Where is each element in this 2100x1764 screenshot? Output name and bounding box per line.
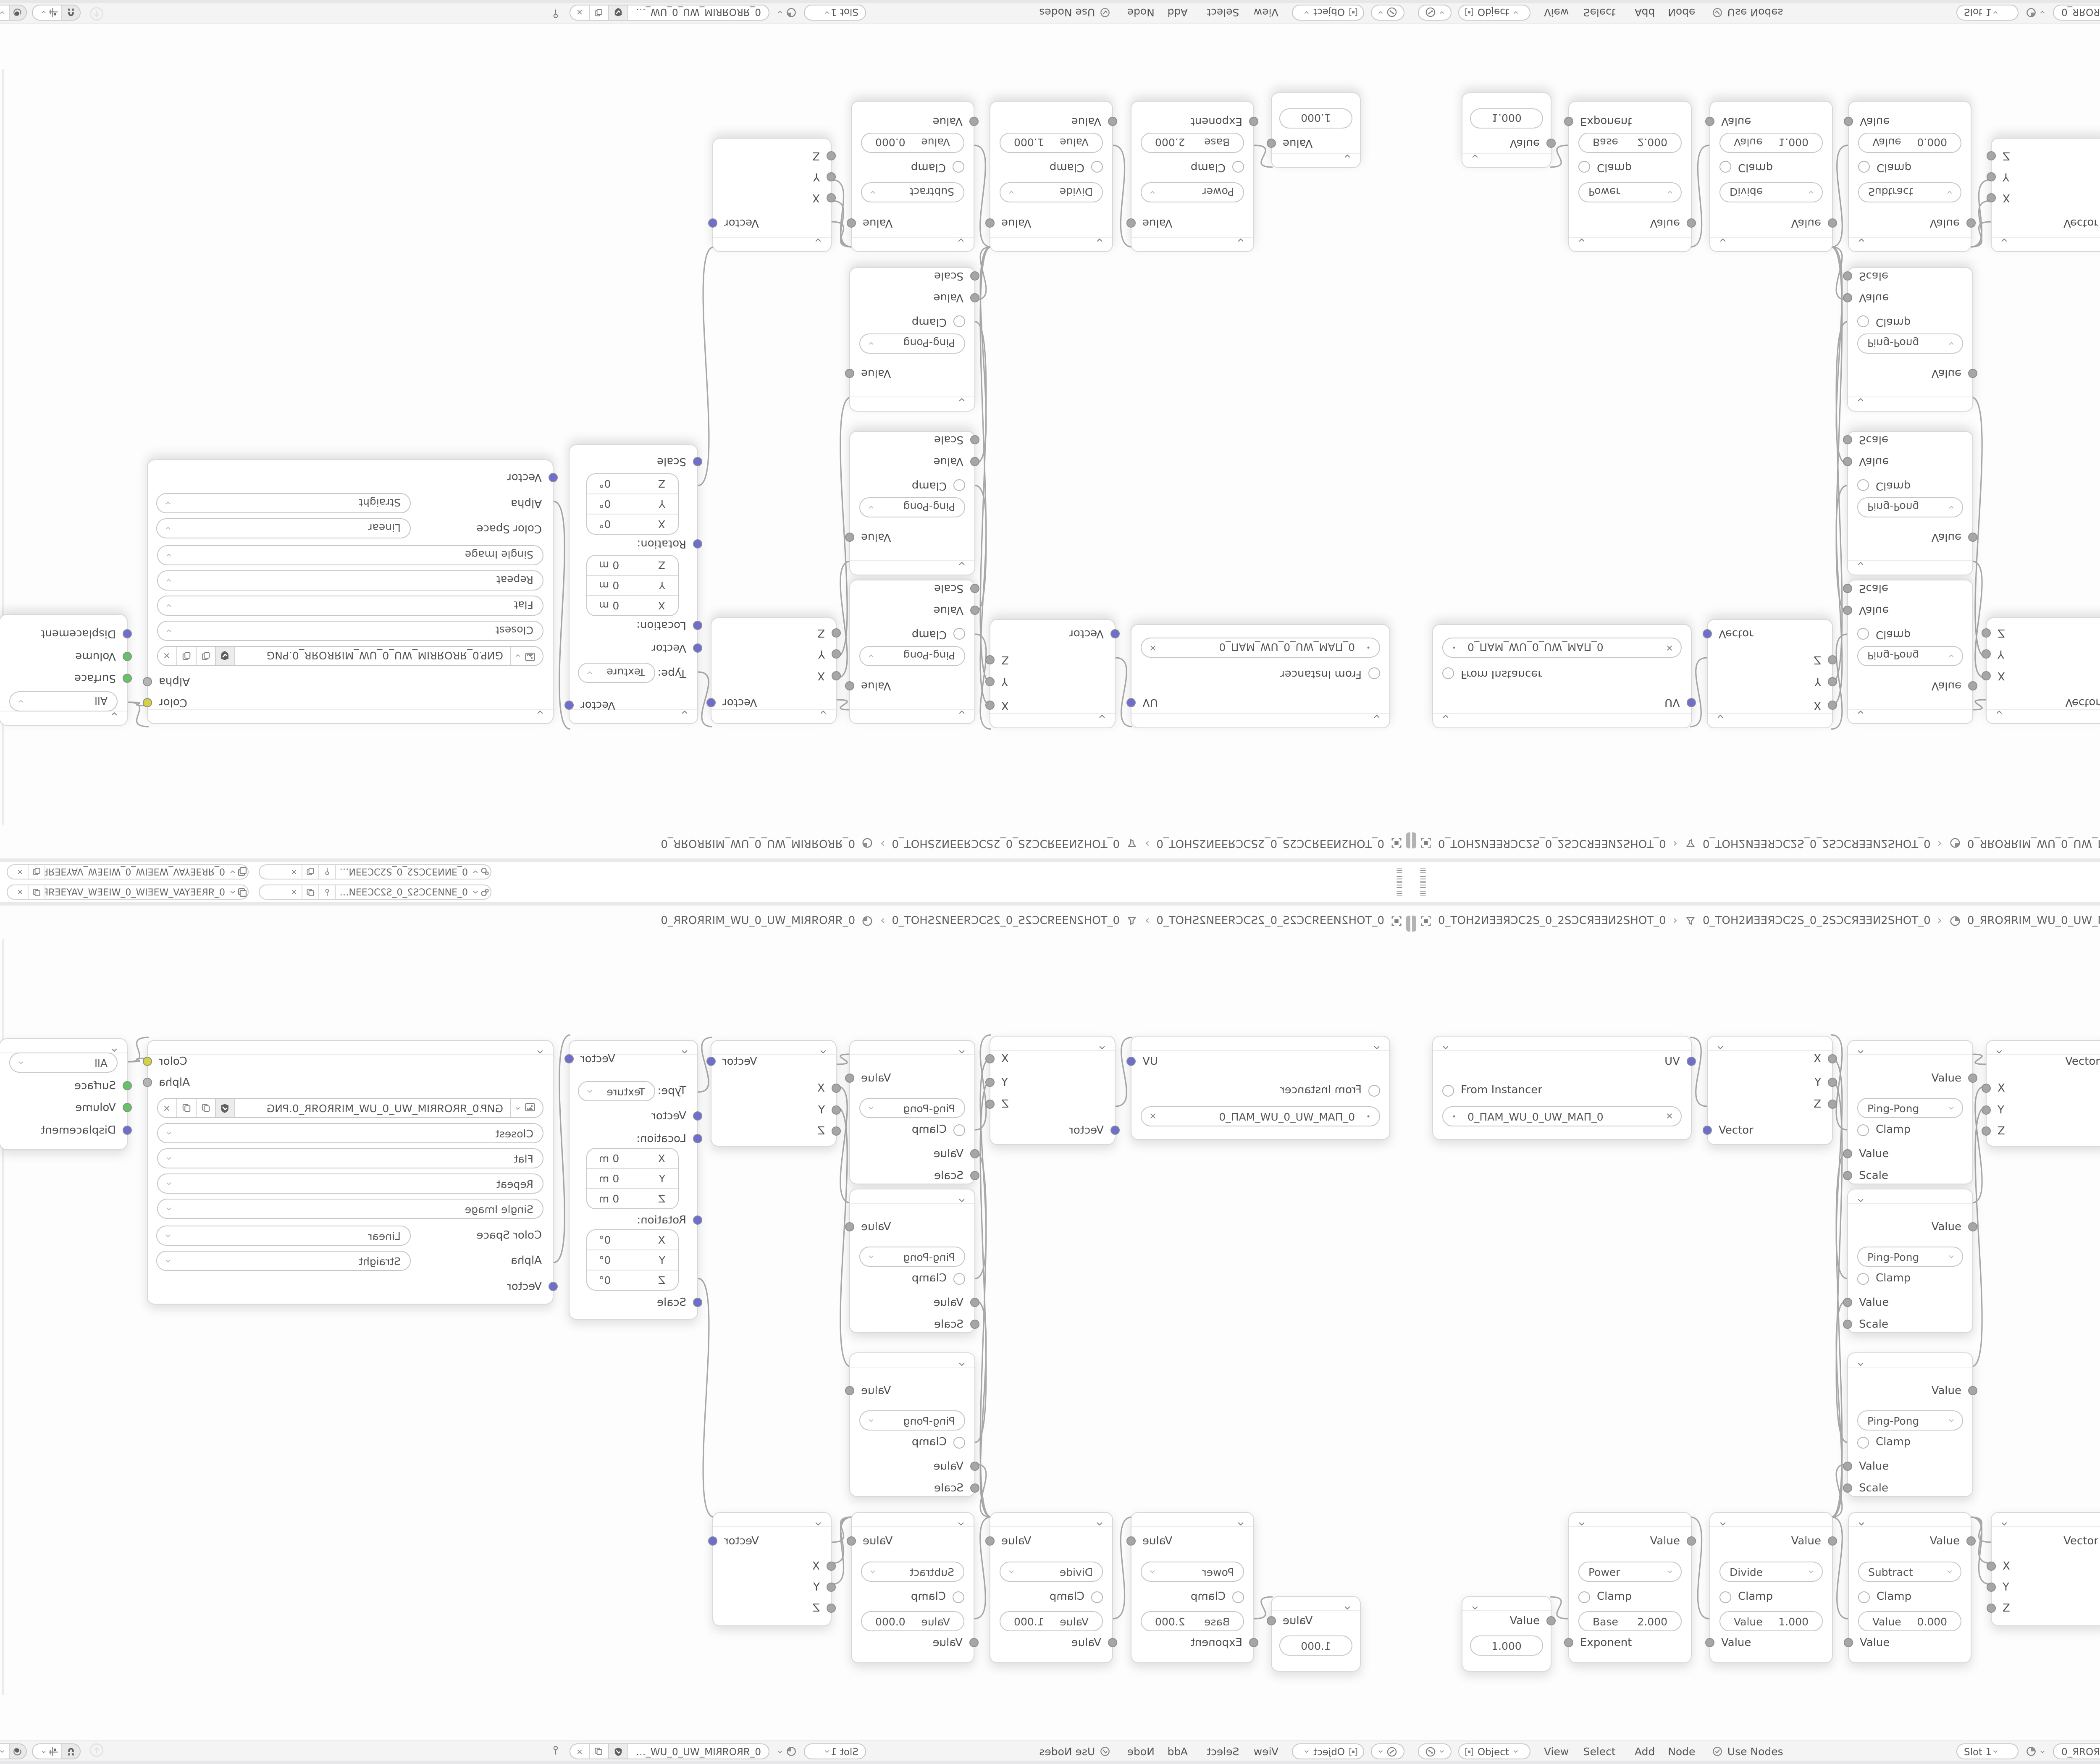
collapse-chevron-icon[interactable] bbox=[1095, 1516, 1105, 1532]
checkbox-clamp[interactable]: Clamp bbox=[1857, 479, 1911, 492]
math-subtract-node-value-field[interactable]: Value0.000 bbox=[861, 133, 964, 153]
input-socket-z[interactable] bbox=[1987, 1604, 1996, 1613]
input-socket-exponent[interactable] bbox=[1249, 1638, 1258, 1647]
collapse-chevron-icon[interactable] bbox=[1856, 232, 1866, 248]
node-canvas[interactable]: 0_TOH2ИƎƎЯƆC2S_0_2SƆCЯƎƎИ2SHOT_0›0_TOH2И… bbox=[1411, 24, 2100, 858]
input-socket-location-[interactable] bbox=[693, 621, 702, 630]
output-socket-value[interactable] bbox=[1126, 1536, 1136, 1546]
uv-map-node[interactable]: UVFrom Instancer0_ПAM_WU_0_UW_MAП_0 bbox=[1131, 1036, 1390, 1140]
checkbox-clamp[interactable]: Clamp bbox=[1050, 161, 1103, 173]
input-socket-value[interactable] bbox=[1705, 1638, 1714, 1647]
vector-component-row[interactable]: Z0 m bbox=[587, 556, 678, 576]
input-socket-y[interactable] bbox=[827, 1583, 836, 1592]
collapse-chevron-icon[interactable] bbox=[680, 704, 690, 720]
input-socket-value[interactable] bbox=[1108, 1638, 1117, 1647]
vector-component-row[interactable]: Z0 m bbox=[587, 1188, 678, 1208]
math-ping-pong-3-node[interactable]: ValuePing-PongClampValueScale bbox=[1847, 1352, 1973, 1497]
input-socket-z[interactable] bbox=[832, 1126, 841, 1136]
math-ping-pong-1-node[interactable]: ValuePing-PongClampValueScale bbox=[1847, 1040, 1973, 1184]
hamburger-icon[interactable]: ☰ bbox=[1396, 893, 1403, 897]
output-socket-vector[interactable] bbox=[564, 1054, 574, 1063]
math-power-node-value-field[interactable]: Base2.000 bbox=[1578, 133, 1682, 153]
shader-type-dropdown[interactable]: Object bbox=[1292, 1743, 1364, 1759]
input-socket-z[interactable] bbox=[1982, 1126, 1991, 1136]
checkbox-clamp[interactable]: Clamp bbox=[912, 628, 965, 640]
input-socket-z[interactable] bbox=[832, 628, 841, 638]
input-socket-y[interactable] bbox=[832, 649, 841, 659]
collapse-chevron-icon[interactable] bbox=[813, 1516, 823, 1532]
output-socket-y[interactable] bbox=[985, 1078, 995, 1087]
close-icon[interactable] bbox=[1142, 641, 1158, 654]
checkbox-clamp[interactable]: Clamp bbox=[1050, 1591, 1103, 1603]
input-socket-vector[interactable] bbox=[1110, 629, 1120, 638]
input-socket-scale[interactable] bbox=[1843, 1483, 1852, 1493]
output-socket-value[interactable] bbox=[845, 1222, 854, 1231]
input-socket-vector[interactable] bbox=[1110, 1126, 1120, 1135]
menu-add[interactable]: Add bbox=[1635, 6, 1655, 19]
value-node-value-field[interactable]: 1.000 bbox=[1279, 1635, 1352, 1656]
math-ping-pong-3-node-dropdown[interactable]: Ping-Pong bbox=[1857, 333, 1963, 354]
checkbox-from-instancer[interactable]: From Instancer bbox=[1442, 667, 1542, 680]
output-socket-value[interactable] bbox=[1968, 681, 1977, 690]
checkbox-clamp[interactable]: Clamp bbox=[912, 479, 965, 492]
math-power-node-value-field[interactable]: Base2.000 bbox=[1578, 1611, 1682, 1631]
combine-xyz-2-node[interactable]: VectorXYZ bbox=[1991, 138, 2100, 252]
math-divide-node[interactable]: ValueDivideClampValue1.000Value bbox=[1709, 1512, 1833, 1663]
output-socket-value[interactable] bbox=[1828, 218, 1837, 228]
close-icon[interactable] bbox=[1665, 1110, 1681, 1123]
input-socket-vector[interactable] bbox=[1703, 629, 1712, 638]
input-socket-scale[interactable] bbox=[1843, 435, 1852, 444]
output-socket-value[interactable] bbox=[1687, 218, 1696, 228]
output-socket-value[interactable] bbox=[1546, 1616, 1556, 1625]
proportional-icon[interactable] bbox=[10, 5, 26, 20]
copy-icon[interactable] bbox=[29, 865, 45, 879]
math-power-node-dropdown[interactable]: Power bbox=[1141, 1562, 1244, 1582]
collapse-chevron-icon[interactable] bbox=[1236, 1516, 1246, 1532]
math-ping-pong-2-node[interactable]: ValuePing-PongClampValueScale bbox=[1847, 431, 1973, 575]
use-nodes-checkbox[interactable]: Use Nodes bbox=[1039, 1745, 1110, 1758]
collapse-chevron-icon[interactable] bbox=[957, 1044, 967, 1060]
mapping-node[interactable]: VectorType:TextureVectorLocation:X0 mY0 … bbox=[569, 1040, 698, 1320]
collapse-chevron-icon[interactable] bbox=[1718, 1516, 1728, 1532]
math-ping-pong-2-node-dropdown[interactable]: Ping-Pong bbox=[1857, 497, 1963, 517]
output-socket-vector[interactable] bbox=[564, 701, 574, 710]
uv-map-node-name-field[interactable]: 0_ПAM_WU_0_UW_MAП_0 bbox=[1141, 638, 1380, 658]
input-socket-value[interactable] bbox=[970, 457, 979, 466]
checkbox-clamp[interactable]: Clamp bbox=[912, 315, 965, 328]
node-canvas[interactable]: 0_TOH2ИƎƎЯƆC2S_0_2SƆCЯƎƎИ2SHOT_0›0_TOH2И… bbox=[1411, 906, 2100, 1740]
input-socket-scale[interactable] bbox=[1843, 584, 1852, 593]
editor-type-button[interactable] bbox=[1371, 5, 1404, 21]
input-socket-z[interactable] bbox=[1987, 151, 1996, 160]
math-ping-pong-2-node-dropdown[interactable]: Ping-Pong bbox=[859, 1247, 965, 1267]
menu-add[interactable]: Add bbox=[1168, 1745, 1188, 1758]
math-ping-pong-2-node[interactable]: ValuePing-PongClampValueScale bbox=[849, 431, 975, 575]
collapse-chevron-icon[interactable] bbox=[1097, 708, 1107, 724]
input-socket-value[interactable] bbox=[969, 117, 979, 126]
input-socket-x[interactable] bbox=[832, 1084, 841, 1093]
input-socket-value[interactable] bbox=[1843, 293, 1852, 302]
output-socket-value[interactable] bbox=[1968, 1386, 1977, 1395]
value-node-value-field[interactable]: 1.000 bbox=[1279, 108, 1352, 129]
input-socket-value[interactable] bbox=[1843, 1462, 1852, 1471]
input-socket-z[interactable] bbox=[1982, 628, 1991, 638]
input-socket-y[interactable] bbox=[1982, 1105, 1991, 1115]
collapse-chevron-icon[interactable] bbox=[1994, 1044, 2004, 1060]
output-socket-value[interactable] bbox=[1968, 533, 1977, 542]
input-socket-y[interactable] bbox=[1987, 172, 1996, 181]
material-name-field[interactable]: 0_ЯROЯRIM_WU_0_UW_MIЯROЯR_0 bbox=[570, 5, 769, 21]
input-socket-x[interactable] bbox=[832, 671, 841, 680]
input-socket-scale[interactable] bbox=[1843, 271, 1852, 281]
input-socket-y[interactable] bbox=[1987, 1583, 1996, 1592]
menu-view[interactable]: View bbox=[1254, 6, 1278, 19]
collapse-chevron-icon[interactable] bbox=[1577, 232, 1587, 248]
chevron-down-icon[interactable] bbox=[0, 1744, 10, 1759]
checkbox-clamp[interactable]: Clamp bbox=[912, 1436, 965, 1449]
checkbox-clamp[interactable]: Clamp bbox=[1857, 1123, 1911, 1136]
input-socket-x[interactable] bbox=[827, 1562, 836, 1571]
editor-type-button[interactable] bbox=[1371, 1743, 1404, 1759]
separate-xyz-node[interactable]: XYZVector bbox=[990, 1036, 1116, 1145]
output-socket-value[interactable] bbox=[1968, 369, 1977, 378]
separate-xyz-node[interactable]: XYZVector bbox=[1707, 1036, 1833, 1145]
collapse-chevron-icon[interactable] bbox=[813, 232, 823, 248]
mapping-node-dropdown[interactable]: Texture bbox=[578, 1081, 655, 1101]
math-power-node-value-field[interactable]: Base2.000 bbox=[1141, 133, 1244, 153]
output-socket-value[interactable] bbox=[1966, 218, 1976, 228]
checkbox-clamp[interactable]: Clamp bbox=[1857, 628, 1911, 640]
collapse-chevron-icon[interactable] bbox=[1994, 704, 2004, 720]
collapse-chevron-icon[interactable] bbox=[1856, 1516, 1866, 1532]
collapse-chevron-icon[interactable] bbox=[1718, 232, 1728, 248]
input-socket-value[interactable] bbox=[970, 1298, 979, 1307]
uv-map-node-name-field[interactable]: 0_ПAM_WU_0_UW_MAП_0 bbox=[1442, 1106, 1682, 1126]
close-icon[interactable] bbox=[286, 885, 302, 899]
math-ping-pong-3-node[interactable]: ValuePing-PongClampValueScale bbox=[849, 267, 975, 412]
output-socket-z[interactable] bbox=[985, 655, 995, 664]
checkbox-clamp[interactable]: Clamp bbox=[1578, 1591, 1632, 1603]
math-ping-pong-1-node[interactable]: ValuePing-PongClampValueScale bbox=[849, 580, 975, 724]
checkbox-clamp[interactable]: Clamp bbox=[911, 161, 964, 173]
math-subtract-node-value-field[interactable]: Value0.000 bbox=[1858, 133, 1961, 153]
output-socket-value[interactable] bbox=[845, 369, 854, 378]
vector-component-row[interactable]: Y0° bbox=[587, 494, 678, 514]
proportional-editing-controls[interactable] bbox=[0, 5, 27, 21]
vector-component-row[interactable]: X0 m bbox=[587, 596, 678, 615]
output-socket-alpha[interactable] bbox=[143, 1078, 152, 1087]
image-texture-node-dropdown[interactable]: Closest bbox=[157, 621, 543, 641]
node-canvas[interactable]: 0_TOH2ИƎƎЯƆC2S_0_2SƆCЯƎƎИ2SHOT_0›0_TOH2И… bbox=[0, 24, 1411, 858]
slot-dropdown[interactable]: Slot 1 bbox=[804, 1743, 866, 1759]
collapse-chevron-icon[interactable] bbox=[1372, 1040, 1382, 1056]
material-output-node-dropdown[interactable]: All bbox=[9, 1053, 118, 1073]
output-socket-value[interactable] bbox=[845, 1074, 854, 1083]
snap-target-icon[interactable] bbox=[38, 5, 62, 20]
math-divide-node-dropdown[interactable]: Divide bbox=[1000, 182, 1103, 202]
output-socket-vector[interactable] bbox=[706, 698, 716, 707]
shield-icon[interactable] bbox=[609, 5, 628, 20]
image-texture-node[interactable]: ColorAlphaGИP.0_ЯROЯRIM_WU_0_UW_MIЯROЯR_… bbox=[147, 1040, 554, 1305]
shield-icon[interactable] bbox=[216, 647, 235, 665]
collapse-chevron-icon[interactable] bbox=[1342, 1600, 1352, 1616]
math-power-node[interactable]: ValuePowerClampBase2.000Exponent bbox=[1131, 101, 1254, 252]
checkbox-clamp[interactable]: Clamp bbox=[1719, 1591, 1773, 1603]
math-power-node-value-field[interactable]: Base2.000 bbox=[1141, 1611, 1244, 1631]
output-socket-x[interactable] bbox=[985, 1054, 995, 1063]
input-socket-vector[interactable] bbox=[549, 1282, 558, 1291]
collapse-chevron-icon[interactable] bbox=[956, 232, 966, 248]
menu-add[interactable]: Add bbox=[1168, 6, 1188, 19]
output-socket-y[interactable] bbox=[985, 677, 995, 686]
view-layer-selector[interactable]: 0_ЯRƎEYAV_WƎEIW_0_WIƎEW_VAYƎEЯR_0 bbox=[7, 864, 249, 879]
slot-dropdown[interactable]: Slot 1 bbox=[1956, 5, 2019, 21]
output-socket-z[interactable] bbox=[1828, 1100, 1837, 1109]
vector-component-row[interactable]: X0° bbox=[587, 1230, 678, 1249]
math-ping-pong-3-node-dropdown[interactable]: Ping-Pong bbox=[859, 1410, 965, 1431]
math-divide-node-dropdown[interactable]: Divide bbox=[1719, 182, 1823, 202]
collapse-chevron-icon[interactable] bbox=[1470, 148, 1480, 164]
checkbox-clamp[interactable]: Clamp bbox=[1191, 161, 1244, 173]
hamburger-icon[interactable]: ☰ bbox=[1420, 875, 1426, 879]
output-socket-value[interactable] bbox=[847, 1536, 856, 1546]
combine-xyz-2-node[interactable]: VectorXYZ bbox=[712, 1512, 832, 1626]
output-socket-value[interactable] bbox=[1267, 1616, 1276, 1625]
input-socket-z[interactable] bbox=[827, 1604, 836, 1613]
output-socket-value[interactable] bbox=[1828, 1536, 1837, 1546]
combine-xyz-1-node[interactable]: VectorXYZ bbox=[711, 1040, 837, 1147]
checkbox-clamp[interactable]: Clamp bbox=[1191, 1591, 1244, 1603]
math-ping-pong-2-node[interactable]: ValuePing-PongClampValueScale bbox=[849, 1189, 975, 1333]
sidebar-toggle-tab[interactable] bbox=[1406, 916, 1410, 932]
image-texture-node-dropdown[interactable]: Straight bbox=[156, 493, 411, 513]
mapping-node[interactable]: VectorType:TextureVectorLocation:X0 mY0 … bbox=[569, 444, 698, 724]
separate-xyz-node[interactable]: XYZVector bbox=[1707, 619, 1833, 728]
input-socket-x[interactable] bbox=[827, 193, 836, 202]
output-socket-y[interactable] bbox=[1828, 1078, 1837, 1087]
collapse-chevron-icon[interactable] bbox=[1856, 1193, 1866, 1209]
math-power-node[interactable]: ValuePowerClampBase2.000Exponent bbox=[1568, 101, 1692, 252]
input-socket-exponent[interactable] bbox=[1564, 1638, 1573, 1647]
proportional-editing-controls[interactable] bbox=[0, 1743, 27, 1759]
close-icon[interactable] bbox=[1142, 1110, 1158, 1123]
input-socket-value[interactable] bbox=[1705, 117, 1714, 126]
input-socket-value[interactable] bbox=[970, 606, 979, 615]
collapse-chevron-icon[interactable] bbox=[957, 555, 967, 571]
uv-map-node-name-field[interactable]: 0_ПAM_WU_0_UW_MAП_0 bbox=[1442, 638, 1682, 658]
vector-component-row[interactable]: X0 m bbox=[587, 1149, 678, 1168]
pin-icon[interactable] bbox=[550, 1745, 561, 1758]
close-icon[interactable] bbox=[13, 885, 29, 899]
math-ping-pong-1-node-dropdown[interactable]: Ping-Pong bbox=[859, 646, 965, 666]
input-socket-surface[interactable] bbox=[123, 674, 132, 683]
image-texture-node-image-selector[interactable]: GИP.0_ЯROЯRIM_WU_0_UW_MIЯROЯR_0.PNG bbox=[157, 646, 543, 666]
collapse-chevron-icon[interactable] bbox=[1856, 1357, 1866, 1373]
checkbox-clamp[interactable]: Clamp bbox=[1857, 315, 1911, 328]
math-ping-pong-1-node-dropdown[interactable]: Ping-Pong bbox=[859, 1098, 965, 1118]
shader-type-dropdown[interactable]: Object bbox=[1458, 1743, 1530, 1759]
input-socket-x[interactable] bbox=[1982, 671, 1991, 680]
image-texture-node-dropdown[interactable]: Straight bbox=[156, 1251, 411, 1271]
checkbox-from-instancer[interactable]: From Instancer bbox=[1442, 1084, 1542, 1097]
output-socket-x[interactable] bbox=[1828, 701, 1837, 710]
input-socket-exponent[interactable] bbox=[1564, 117, 1573, 126]
snapping-controls[interactable] bbox=[32, 5, 81, 21]
input-socket-volume[interactable] bbox=[123, 1103, 132, 1112]
checkbox-clamp[interactable]: Clamp bbox=[1858, 161, 1911, 173]
material-icon[interactable] bbox=[2025, 7, 2046, 18]
image-texture-node-dropdown[interactable]: Linear bbox=[156, 1226, 411, 1246]
image-texture-node-dropdown[interactable]: Flat bbox=[157, 596, 543, 616]
close-icon[interactable] bbox=[158, 647, 177, 665]
editor-type-button[interactable] bbox=[1418, 1743, 1452, 1759]
math-subtract-node-value-field[interactable]: Value0.000 bbox=[861, 1611, 964, 1631]
output-socket-y[interactable] bbox=[1828, 677, 1837, 686]
output-socket-vector[interactable] bbox=[708, 1536, 717, 1546]
math-subtract-node[interactable]: ValueSubtractClampValue0.000Value bbox=[851, 1512, 974, 1663]
input-socket-value[interactable] bbox=[1844, 117, 1853, 126]
input-socket-location-[interactable] bbox=[693, 1134, 702, 1143]
output-socket-x[interactable] bbox=[985, 701, 995, 710]
output-socket-color[interactable] bbox=[143, 1057, 152, 1066]
material-output-node[interactable]: AllSurfaceVolumeDisplacement bbox=[0, 1038, 128, 1150]
node-canvas[interactable]: 0_TOH2ИƎƎЯƆC2S_0_2SƆCЯƎƎИ2SHOT_0›0_TOH2И… bbox=[0, 906, 1411, 1740]
image-texture-node-dropdown[interactable]: Repeat bbox=[157, 1173, 543, 1194]
math-power-node-dropdown[interactable]: Power bbox=[1141, 182, 1244, 202]
math-divide-node-dropdown[interactable]: Divide bbox=[1719, 1562, 1823, 1582]
image-texture-node-dropdown[interactable]: Single Image bbox=[157, 1199, 543, 1219]
hamburger-icon[interactable]: ☰ bbox=[1420, 885, 1426, 889]
output-socket-value[interactable] bbox=[1968, 1074, 1977, 1083]
input-socket-value[interactable] bbox=[1843, 606, 1852, 615]
menu-view[interactable]: View bbox=[1544, 1745, 1569, 1758]
input-socket-vector[interactable] bbox=[549, 473, 558, 482]
input-socket-scale[interactable] bbox=[970, 1171, 979, 1180]
slot-dropdown[interactable]: Slot 1 bbox=[1956, 1743, 2019, 1759]
output-socket-z[interactable] bbox=[985, 1100, 995, 1109]
material-output-node-dropdown[interactable]: All bbox=[9, 691, 118, 711]
snap-target-icon[interactable] bbox=[38, 1744, 62, 1759]
collapse-chevron-icon[interactable] bbox=[1856, 704, 1866, 720]
math-ping-pong-2-node-dropdown[interactable]: Ping-Pong bbox=[1857, 1247, 1963, 1267]
checkbox-from-instancer[interactable]: From Instancer bbox=[1280, 1084, 1380, 1097]
checkbox-clamp[interactable]: Clamp bbox=[1719, 161, 1773, 173]
magnet-icon[interactable] bbox=[62, 5, 80, 20]
collapse-chevron-icon[interactable] bbox=[1441, 1040, 1451, 1056]
chevron-down-icon[interactable] bbox=[0, 5, 10, 20]
close-icon[interactable] bbox=[13, 865, 29, 879]
value-node-value-field[interactable]: 1.000 bbox=[1470, 108, 1543, 129]
menu-add[interactable]: Add bbox=[1635, 1745, 1655, 1758]
vector-xyz-field[interactable]: X0 mY0 mZ0 m bbox=[586, 1148, 679, 1209]
input-socket-volume[interactable] bbox=[123, 652, 132, 661]
input-socket-rotation-[interactable] bbox=[693, 1215, 702, 1225]
combine-xyz-1-node[interactable]: VectorXYZ bbox=[711, 617, 837, 724]
math-divide-node-value-field[interactable]: Value1.000 bbox=[1000, 133, 1103, 153]
math-ping-pong-1-node-dropdown[interactable]: Ping-Pong bbox=[1857, 646, 1963, 666]
proportional-icon[interactable] bbox=[10, 1744, 26, 1759]
output-socket-value[interactable] bbox=[845, 533, 854, 542]
close-icon[interactable] bbox=[570, 1744, 590, 1759]
vector-component-row[interactable]: X0° bbox=[587, 514, 678, 534]
output-socket-x[interactable] bbox=[1828, 1054, 1837, 1063]
collapse-chevron-icon[interactable] bbox=[1236, 232, 1246, 248]
duplicate-icon[interactable] bbox=[177, 647, 197, 665]
math-divide-node[interactable]: ValueDivideClampValue1.000Value bbox=[1709, 101, 1833, 252]
math-power-node[interactable]: ValuePowerClampBase2.000Exponent bbox=[1131, 1512, 1254, 1663]
collapse-chevron-icon[interactable] bbox=[680, 1044, 690, 1060]
value-node[interactable]: Value1.000 bbox=[1271, 1596, 1361, 1672]
copy-icon[interactable] bbox=[302, 865, 319, 879]
use-nodes-checkbox[interactable]: Use Nodes bbox=[1039, 6, 1110, 19]
shader-type-dropdown[interactable]: Object bbox=[1458, 5, 1530, 21]
input-socket-x[interactable] bbox=[1987, 1562, 1996, 1571]
checkbox-clamp[interactable]: Clamp bbox=[912, 1123, 965, 1136]
input-socket-scale[interactable] bbox=[970, 584, 979, 593]
output-socket-vector[interactable] bbox=[706, 1057, 716, 1066]
vector-component-row[interactable]: Z0° bbox=[587, 474, 678, 494]
output-socket-value[interactable] bbox=[845, 1386, 854, 1395]
menu-node[interactable]: Node bbox=[1668, 1745, 1695, 1758]
math-divide-node[interactable]: ValueDivideClampValue1.000Value bbox=[990, 1512, 1113, 1663]
math-subtract-node-dropdown[interactable]: Subtract bbox=[1858, 182, 1961, 202]
pin-icon[interactable] bbox=[319, 865, 336, 879]
collapse-chevron-icon[interactable] bbox=[535, 704, 545, 720]
image-texture-node-dropdown[interactable]: Closest bbox=[157, 1123, 543, 1143]
collapse-chevron-icon[interactable] bbox=[535, 1044, 545, 1060]
collapse-chevron-icon[interactable] bbox=[1856, 555, 1866, 571]
editor-type-button[interactable] bbox=[1418, 5, 1452, 21]
input-socket-scale[interactable] bbox=[970, 271, 979, 281]
input-socket-y[interactable] bbox=[1982, 649, 1991, 659]
material-icon[interactable] bbox=[776, 1746, 797, 1757]
checkbox-clamp[interactable]: Clamp bbox=[1857, 1436, 1911, 1449]
output-socket-value[interactable] bbox=[985, 1536, 995, 1546]
input-socket-x[interactable] bbox=[1982, 1084, 1991, 1093]
pin-icon[interactable] bbox=[550, 6, 561, 19]
output-socket-color[interactable] bbox=[143, 698, 152, 707]
vector-xyz-field[interactable]: X0 mY0 mZ0 m bbox=[586, 555, 679, 616]
menu-node[interactable]: Node bbox=[1668, 6, 1695, 19]
input-socket-value[interactable] bbox=[970, 1462, 979, 1471]
collapse-chevron-icon[interactable] bbox=[1342, 148, 1352, 164]
image-texture-node[interactable]: ColorAlphaGИP.0_ЯROЯRIM_WU_0_UW_MIЯROЯR_… bbox=[147, 459, 554, 724]
input-socket-rotation-[interactable] bbox=[693, 539, 702, 549]
collapse-chevron-icon[interactable] bbox=[1372, 708, 1382, 724]
math-divide-node-value-field[interactable]: Value1.000 bbox=[1719, 133, 1823, 153]
vector-component-row[interactable]: Y0 m bbox=[587, 576, 678, 596]
image-texture-node-dropdown[interactable]: Repeat bbox=[157, 570, 543, 591]
math-ping-pong-3-node[interactable]: ValuePing-PongClampValueScale bbox=[1847, 267, 1973, 412]
use-nodes-checkbox[interactable]: Use Nodes bbox=[1712, 1745, 1783, 1758]
close-icon[interactable] bbox=[1665, 641, 1681, 654]
combine-xyz-2-node[interactable]: VectorXYZ bbox=[1991, 1512, 2100, 1626]
math-subtract-node-value-field[interactable]: Value0.000 bbox=[1858, 1611, 1961, 1631]
input-socket-vector[interactable] bbox=[693, 643, 702, 653]
scene-selector[interactable]: 0_ƎИИƎƆCS2_0_S2ƆCƎƎИ… bbox=[259, 885, 491, 900]
input-socket-scale[interactable] bbox=[693, 1298, 702, 1307]
collapse-chevron-icon[interactable] bbox=[1095, 232, 1105, 248]
output-socket-value[interactable] bbox=[1546, 139, 1556, 148]
math-ping-pong-2-node[interactable]: ValuePing-PongClampValueScale bbox=[1847, 1189, 1973, 1333]
collapse-chevron-icon[interactable] bbox=[1856, 391, 1866, 407]
pin-icon[interactable] bbox=[319, 885, 336, 899]
sidebar-toggle-tab[interactable] bbox=[1406, 832, 1410, 848]
up-arrow-button[interactable] bbox=[89, 1743, 104, 1760]
value-node[interactable]: Value1.000 bbox=[1462, 1596, 1551, 1672]
combine-xyz-1-node[interactable]: VectorXYZ bbox=[1986, 617, 2100, 724]
